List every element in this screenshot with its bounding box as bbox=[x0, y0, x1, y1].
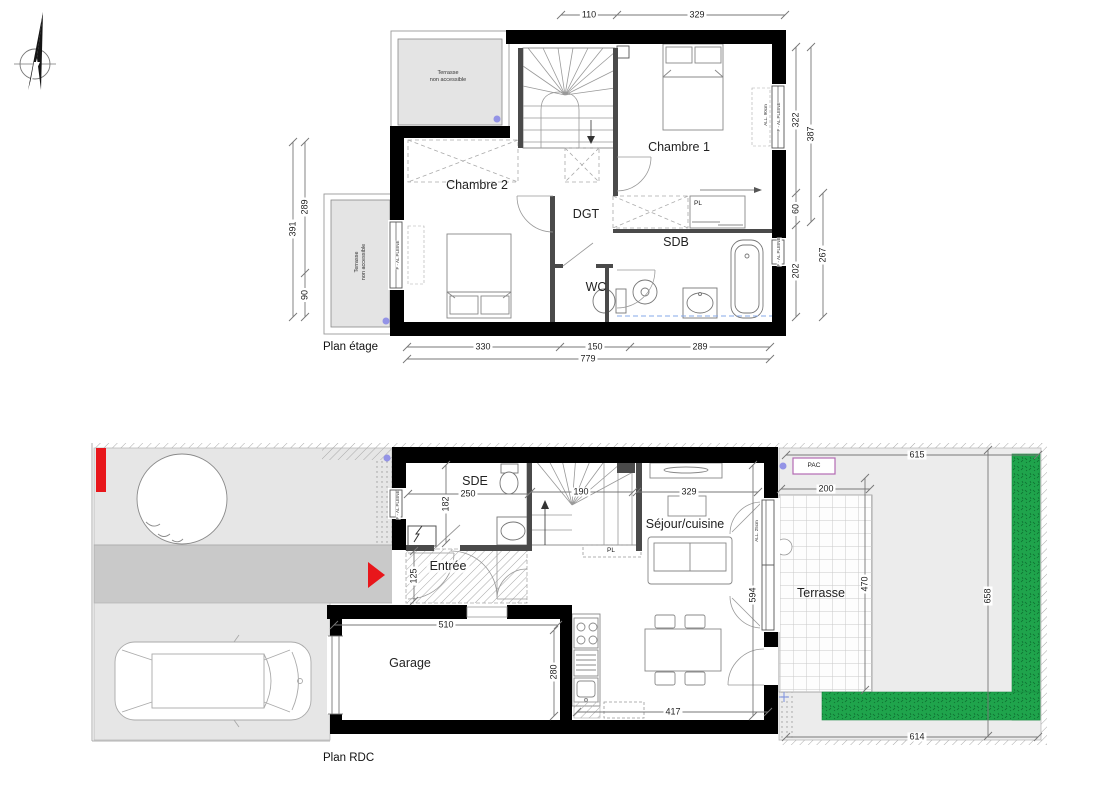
dim-110: 110 bbox=[580, 11, 598, 20]
stairs-etage bbox=[523, 48, 615, 148]
dim-200: 200 bbox=[816, 485, 835, 494]
dim-190: 190 bbox=[571, 488, 590, 497]
terrace-left-label: Terrasse non accessible bbox=[354, 232, 368, 292]
garage-door bbox=[327, 636, 344, 714]
dim-289-bottom: 289 bbox=[690, 343, 709, 352]
dim-150: 150 bbox=[585, 343, 604, 352]
site-boundary-right bbox=[1041, 443, 1047, 745]
dim-417: 417 bbox=[663, 708, 682, 717]
room-label-terrasse: Terrasse bbox=[797, 587, 845, 600]
dim-90: 90 bbox=[301, 288, 310, 302]
sideboard bbox=[650, 463, 722, 478]
room-label-sejour: Séjour/cuisine bbox=[646, 518, 725, 531]
room-label-chambre1: Chambre 1 bbox=[648, 141, 710, 154]
wc-basin bbox=[633, 280, 657, 304]
room-label-sdb: SDB bbox=[663, 236, 689, 249]
plan-rdc-title: Plan RDC bbox=[323, 752, 374, 764]
bed-chambre1 bbox=[663, 44, 723, 130]
dim-510: 510 bbox=[436, 621, 455, 630]
room-label-pl-etage: PL bbox=[694, 201, 702, 208]
room-label-pl-rdc: PL bbox=[607, 548, 615, 555]
dim-250: 250 bbox=[458, 490, 477, 499]
window-label: F - AL PLEINE bbox=[396, 240, 401, 269]
terrace-top-label: Terrasse non accessible bbox=[418, 70, 478, 84]
sofa bbox=[648, 537, 732, 584]
sdb-sink bbox=[683, 288, 717, 318]
bed-chambre2 bbox=[447, 234, 511, 318]
duct-box bbox=[617, 46, 629, 58]
room-label-dgt: DGT bbox=[573, 208, 599, 221]
dim-125: 125 bbox=[410, 566, 419, 585]
window-label: F - AL PLEINE bbox=[396, 490, 401, 519]
room-label-pac: PAC bbox=[808, 463, 821, 470]
entry-porch bbox=[406, 549, 527, 603]
dim-391: 391 bbox=[289, 219, 298, 238]
plan-etage-title: Plan étage bbox=[323, 341, 378, 353]
porch-garage-door bbox=[467, 607, 507, 617]
garage-interior bbox=[342, 617, 562, 722]
dim-470: 470 bbox=[861, 574, 870, 593]
room-label-chambre2: Chambre 2 bbox=[446, 179, 508, 192]
driveway bbox=[94, 545, 406, 603]
dim-779: 779 bbox=[578, 355, 597, 364]
side-table bbox=[668, 496, 706, 516]
bathtub bbox=[731, 240, 763, 318]
dim-280: 280 bbox=[550, 662, 559, 681]
placard-etage bbox=[690, 190, 756, 228]
hedge-right bbox=[1012, 454, 1040, 720]
dim-60: 60 bbox=[792, 202, 801, 216]
hedge-bottom bbox=[822, 692, 1040, 720]
kitchen-corner-hatch bbox=[574, 702, 600, 718]
dim-322: 322 bbox=[792, 110, 801, 129]
kitchen-units bbox=[572, 614, 600, 706]
gravel-strip bbox=[779, 692, 795, 740]
red-boundary-marker bbox=[96, 448, 106, 492]
window-allege-label: ALL. 25cm bbox=[755, 520, 760, 542]
sde-sink bbox=[497, 517, 529, 545]
room-label-entree: Entrée bbox=[427, 560, 470, 573]
car bbox=[115, 635, 311, 727]
gravel-strip bbox=[322, 448, 392, 460]
dim-289-left: 289 bbox=[301, 197, 310, 216]
north-compass-icon bbox=[14, 12, 56, 90]
french-window bbox=[760, 498, 780, 632]
tree bbox=[137, 454, 227, 544]
etage-plan bbox=[289, 11, 827, 363]
room-label-sde: SDE bbox=[462, 475, 488, 488]
sliding-door-arrow bbox=[754, 187, 762, 193]
chambre2-window bbox=[388, 220, 424, 290]
window-allege-label: ALL. 90cm bbox=[764, 104, 769, 126]
dim-594: 594 bbox=[749, 585, 758, 604]
room-label-garage: Garage bbox=[389, 657, 431, 670]
dim-658: 658 bbox=[984, 586, 993, 605]
dim-387: 387 bbox=[807, 124, 816, 143]
window-label: F - AL PLEINE bbox=[777, 237, 782, 266]
window-label: F - AL PLEINE bbox=[777, 102, 782, 131]
dim-330: 330 bbox=[473, 343, 492, 352]
dim-329-rdc: 329 bbox=[679, 488, 698, 497]
chambre1-window bbox=[752, 84, 788, 150]
electric-panel bbox=[408, 526, 436, 546]
dim-182: 182 bbox=[442, 494, 451, 513]
floorplan-sheet: Chambre 1 Chambre 2 DGT SDB WC PL Terras… bbox=[0, 0, 1115, 800]
dim-202: 202 bbox=[792, 261, 801, 280]
dim-614: 614 bbox=[907, 733, 926, 742]
room-label-wc: WC bbox=[586, 281, 607, 294]
dim-329: 329 bbox=[687, 11, 706, 20]
sde-toilet bbox=[500, 464, 518, 494]
dim-267: 267 bbox=[819, 245, 828, 264]
dim-615: 615 bbox=[907, 451, 926, 460]
